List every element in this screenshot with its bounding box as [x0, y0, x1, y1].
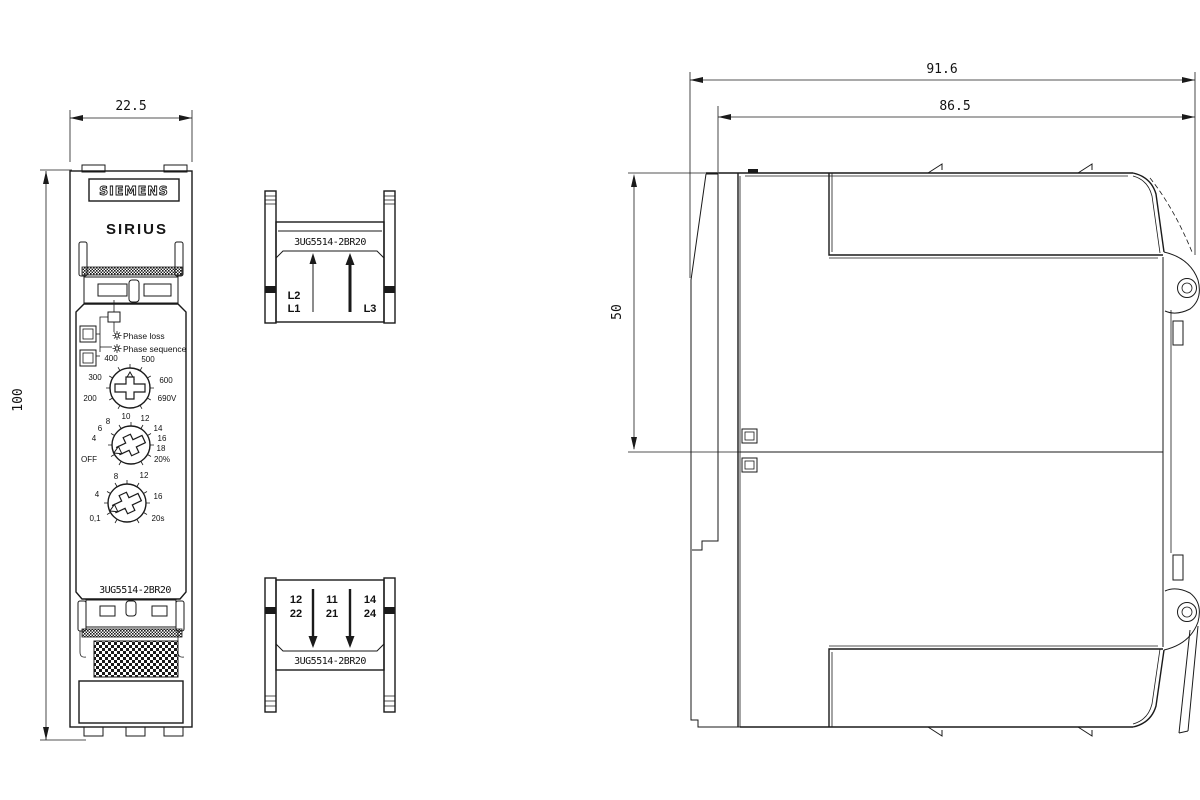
flow-arrow-thick-up: [346, 253, 355, 312]
dial-delay-label: 16: [154, 492, 163, 501]
dim-arrow: [1182, 77, 1195, 83]
terminal-opening: [152, 606, 167, 616]
dial-voltage: 400 500 300 600 200 690V: [83, 354, 177, 409]
side-view: 91.6 86.5 50: [610, 62, 1199, 736]
siemens-logo: SIEMENS: [89, 179, 179, 201]
dial-voltage-label: 600: [159, 376, 173, 385]
terminal-block-top: 3UG5514-2BR20 L2 L1 L3: [265, 191, 395, 323]
data-matrix-code: [94, 641, 178, 677]
led-phase-sequence: [80, 350, 96, 366]
dial-delay: 0,1 4 8 12 16 20s: [89, 471, 164, 523]
dial-asymmetry-label: 16: [158, 434, 167, 443]
clamp-post: [78, 601, 86, 631]
dial-asymmetry: OFF 4 6 8 10 12 14 16 18 20%: [81, 412, 170, 465]
dial-asymmetry-label: 12: [141, 414, 150, 423]
code-strip: 3UG5514-2BR20: [276, 644, 384, 667]
dial-delay-label: 12: [140, 471, 149, 480]
clamp-rail-right: [384, 191, 395, 323]
dim-front-width: 22.5: [70, 99, 192, 162]
dial-delay-label: 0,1: [89, 514, 101, 523]
front-face-window: [742, 429, 757, 443]
dim-depth-total-value: 91.6: [926, 62, 957, 77]
series-label: SIRIUS: [106, 221, 168, 238]
clip-slot: [1173, 321, 1183, 345]
dim-front-width-value: 22.5: [115, 99, 146, 114]
dim-arrow: [631, 174, 637, 187]
dim-arrow: [43, 171, 49, 184]
front-upper-terminals: [79, 242, 183, 303]
top-latch-mark: [748, 169, 758, 173]
flow-arrow-down: [346, 589, 355, 648]
front-view: 22.5 100 SIEMENS SIRIUS: [11, 99, 192, 740]
dim-depth-body-value: 86.5: [939, 99, 970, 114]
front-panel: Phase loss Phase sequence 400 500 300 60…: [76, 300, 187, 599]
front-face-window: [742, 458, 757, 472]
clamp-post: [176, 601, 184, 631]
dial-asymmetry-label: 4: [92, 434, 97, 443]
dim-arrow: [1182, 114, 1195, 120]
snap-tab: [928, 164, 942, 173]
contact-12: 12: [290, 594, 302, 606]
clip-screw-hole: [1178, 279, 1197, 298]
dial-asymmetry-label: 20%: [154, 455, 170, 464]
snap-tab: [928, 727, 942, 736]
terminal-shutter: [82, 629, 182, 637]
dial-asymmetry-label: 8: [106, 417, 111, 426]
release-latch: [129, 280, 139, 302]
din-clip-top: [1133, 173, 1199, 345]
foot-tab: [164, 727, 183, 736]
dial-asymmetry-label: 6: [98, 424, 103, 433]
foot-tab: [126, 727, 145, 736]
din-clip-bottom: [1133, 555, 1199, 733]
contact-22: 22: [290, 608, 302, 620]
bottom-label-recess: [829, 646, 1163, 727]
snap-tab: [1078, 164, 1092, 173]
clip-screw-hole: [1178, 603, 1197, 622]
dim-arrow: [179, 115, 192, 121]
dial-knob: [110, 488, 144, 518]
dial-knob: [115, 377, 145, 399]
dial-delay-label: 4: [95, 490, 100, 499]
dial-voltage-label: 690V: [158, 394, 177, 403]
dim-arrow: [718, 114, 731, 120]
foot-tab: [84, 727, 103, 736]
led-phase-loss: [80, 326, 96, 342]
dial-asymmetry-label: OFF: [81, 455, 97, 464]
clamp-rail-left: [265, 191, 276, 323]
clamp-rail-right: [384, 578, 395, 712]
dial-delay-label: 8: [114, 472, 119, 481]
led-ray-icon: [113, 344, 122, 353]
clip-slot: [1173, 555, 1183, 580]
side-body: [706, 164, 1171, 736]
front-lower-terminals: [78, 600, 184, 723]
dial-voltage-label: 500: [141, 355, 155, 364]
dial-voltage-label: 200: [83, 394, 97, 403]
led1-label: Phase loss: [123, 331, 165, 341]
dim-arrow: [43, 727, 49, 740]
dim-arrow: [690, 77, 703, 83]
contact-21: 21: [326, 608, 338, 620]
led2-label: Phase sequence: [123, 344, 187, 354]
dimensional-drawing-page: 22.5 100 SIEMENS SIRIUS: [0, 0, 1200, 800]
dial-asymmetry-label: 10: [122, 412, 131, 421]
top-label-recess: [829, 173, 1163, 258]
phase-label-l2: L2: [288, 290, 301, 302]
contact-24: 24: [364, 608, 377, 620]
dial-asymmetry-label: 14: [154, 424, 163, 433]
terminal-opening: [100, 606, 115, 616]
dial-voltage-label: 400: [104, 354, 118, 363]
dim-arrow: [70, 115, 83, 121]
dim-depth-body: 86.5: [718, 99, 1195, 172]
flow-arrow-thin-up: [310, 253, 317, 312]
release-latch: [126, 601, 136, 616]
led-ray-icon: [113, 331, 122, 340]
bottom-block-product-code: 3UG5514-2BR20: [294, 656, 366, 667]
terminal-opening: [98, 284, 127, 296]
dim-arrow: [631, 437, 637, 450]
brand-label: SIEMENS: [99, 183, 169, 198]
snap-tab: [1078, 727, 1092, 736]
label-field: [79, 681, 183, 723]
dim-front-height-value: 100: [11, 388, 26, 411]
side-front-flap: [691, 174, 740, 727]
dial-knob: [114, 430, 148, 460]
front-product-code: 3UG5514-2BR20: [99, 585, 171, 596]
dim-recess: 50: [610, 173, 740, 452]
dial-asymmetry-label: 18: [157, 444, 166, 453]
phase-label-l3: L3: [364, 303, 377, 315]
dim-front-height: 100: [11, 170, 86, 740]
top-block-product-code: 3UG5514-2BR20: [294, 237, 366, 248]
contact-14: 14: [364, 594, 377, 606]
dial-delay-label: 20s: [152, 514, 165, 523]
terminal-shutter: [82, 267, 182, 275]
dim-recess-value: 50: [610, 304, 625, 320]
dial-voltage-label: 300: [88, 373, 102, 382]
clip-release-handle: [1179, 626, 1198, 733]
flow-arrow-down: [309, 589, 318, 648]
phase-label-l1: L1: [288, 303, 301, 315]
drawing-canvas: 22.5 100 SIEMENS SIRIUS: [0, 0, 1200, 800]
terminal-block-bottom: 12 11 14 22 21 24 3UG5514-2BR20: [265, 578, 395, 712]
terminal-opening: [144, 284, 171, 296]
code-strip: 3UG5514-2BR20: [276, 231, 384, 258]
clamp-rail-left: [265, 578, 276, 712]
contact-11: 11: [326, 594, 338, 606]
